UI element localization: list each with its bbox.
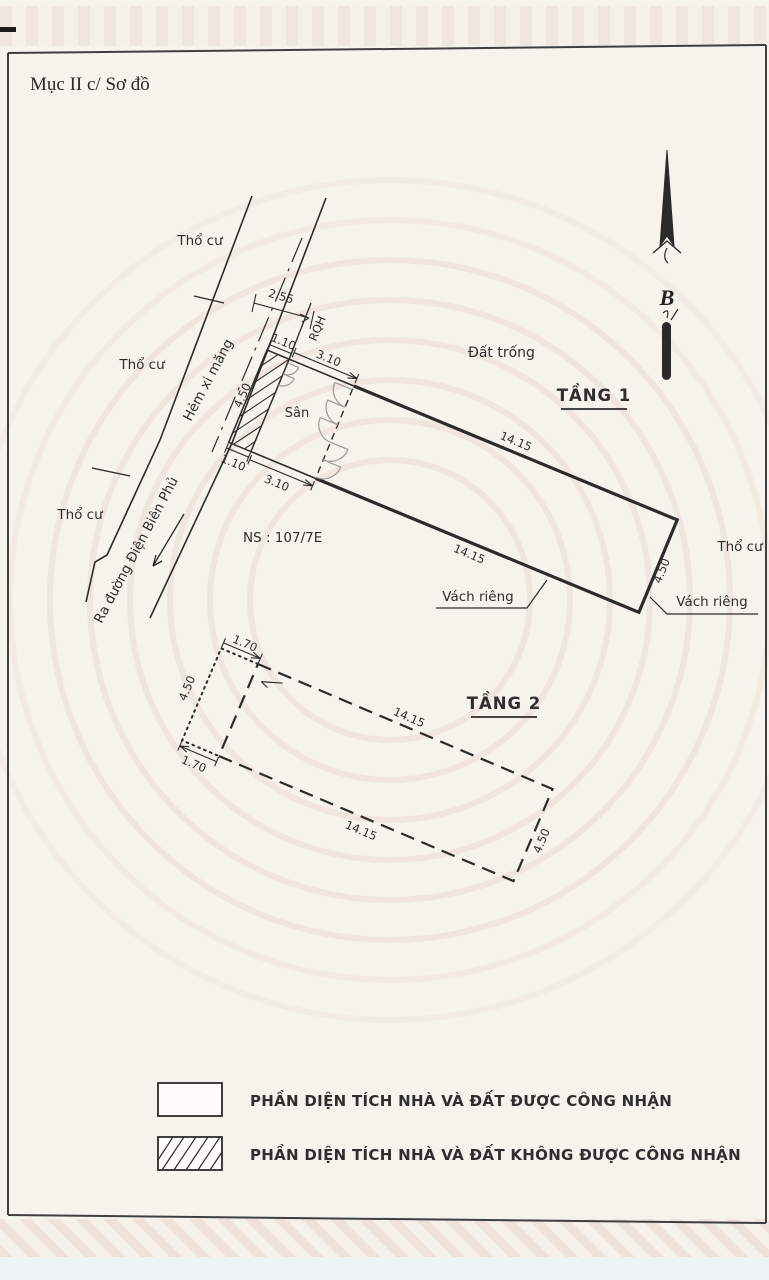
wall-label-right: Vách riêng (676, 594, 747, 610)
parcel-label-right: Thổ cư (716, 538, 764, 555)
section-title: Mục II c/ Sơ đồ (30, 74, 150, 95)
parcel-label-2: Thổ cư (118, 356, 166, 373)
legend-label-recognized: PHẦN DIỆN TÍCH NHÀ VÀ ĐẤT ĐƯỢC CÔNG NHẬN (250, 1089, 672, 1110)
north-arrow-feet (653, 241, 681, 253)
parcel-tick-1 (194, 296, 224, 303)
north-arrow-tail-flag (671, 309, 678, 320)
north-arrow-spear (660, 150, 674, 246)
north-arrow: B (653, 150, 681, 380)
dim-yard-top: 3.10 (314, 347, 343, 370)
house-number-label: NS : 107/7E (243, 530, 322, 546)
dim-floor2-length-top: 14.15 (391, 704, 427, 730)
dim-house-length-bottom: 14.15 (451, 541, 487, 567)
legend: PHẦN DIỆN TÍCH NHÀ VÀ ĐẤT ĐƯỢC CÔNG NHẬN… (158, 1083, 741, 1170)
yard-label: Sân (285, 406, 309, 421)
wall-label-left: Vách riêng (442, 589, 513, 605)
private-wall-callout-right: Vách riêng (650, 594, 758, 614)
north-label: B (659, 285, 675, 310)
parcel-tick-2 (92, 468, 130, 476)
dim-strip-top: 1.10 (269, 330, 298, 353)
vacant-land-label: Đất trống (468, 344, 535, 361)
planning-line-label: RQH (306, 314, 329, 343)
parcel-label-1: Thổ cư (176, 232, 224, 249)
floor2-title: TẦNG 2 (467, 692, 542, 713)
floor1-title: TẦNG 1 (557, 384, 632, 405)
dim-house-width-right: 4.50 (650, 556, 673, 585)
parcel-label-3: Thổ cư (56, 506, 104, 523)
north-arrow-hook-2 (663, 311, 668, 318)
site-plan-drawing: Mục II c/ Sơ đồ B Hẻm xi măng Ra đường Đ… (0, 0, 769, 1280)
north-arrow-hook (665, 248, 668, 263)
legend-swatch-recognized (158, 1083, 222, 1116)
legend-label-unrecognized: PHẦN DIỆN TÍCH NHÀ VÀ ĐẤT KHÔNG ĐƯỢC CÔN… (250, 1143, 741, 1164)
north-arrow-tail (662, 322, 671, 380)
scanned-cadastral-page: Mục II c/ Sơ đồ B Hẻm xi măng Ra đường Đ… (0, 0, 769, 1280)
